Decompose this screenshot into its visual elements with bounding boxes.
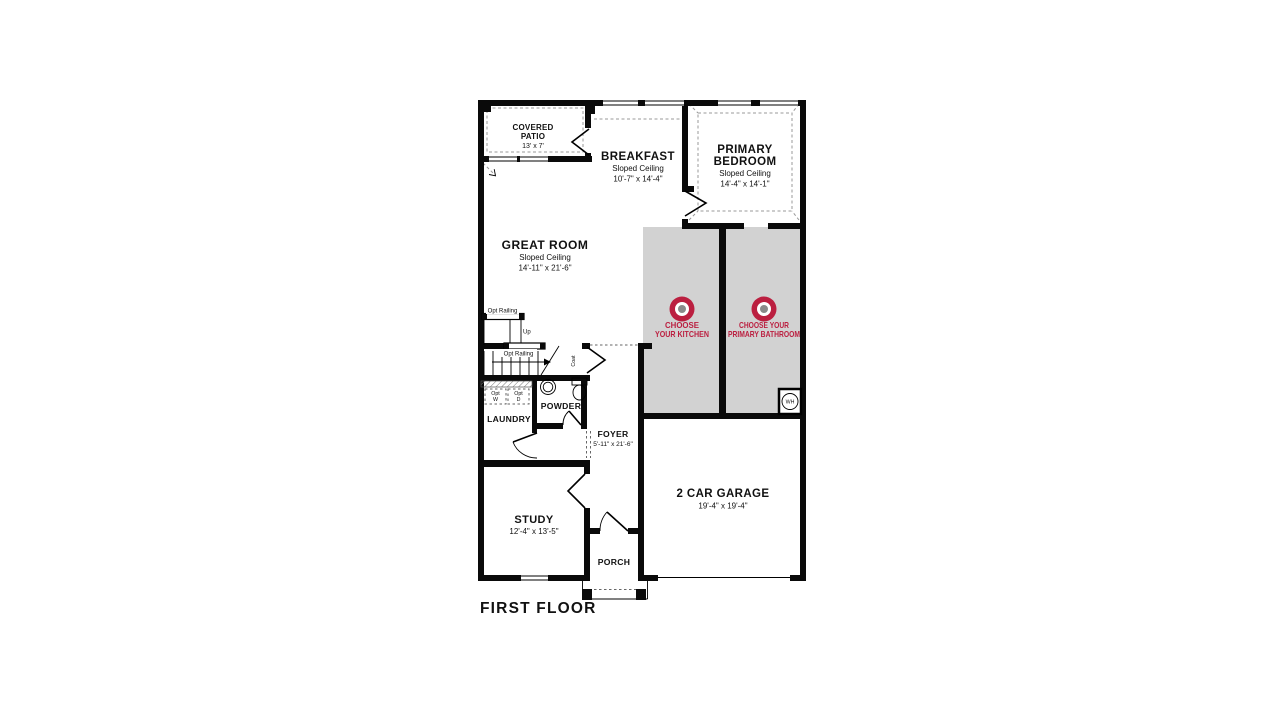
primary-bathroom-hotspot-label-2: PRIMARY BATHROOM bbox=[728, 329, 800, 339]
water-heater-label: WH bbox=[786, 400, 795, 406]
stair-direction-arrow bbox=[492, 359, 551, 366]
porch-post-left bbox=[582, 589, 592, 600]
powder-label: POWDER bbox=[541, 401, 582, 411]
opt-railing-lower-label: Opt Railing bbox=[504, 352, 534, 358]
garage-label: 2 CAR GARAGE 19'-4" x 19'-4" bbox=[677, 488, 770, 511]
opt-dryer-label-2: D bbox=[517, 397, 521, 403]
svg-text:BREAKFAST: BREAKFAST bbox=[601, 151, 675, 163]
svg-text:FOYER: FOYER bbox=[597, 429, 629, 439]
window-patio-1 bbox=[489, 156, 517, 162]
opt-railing-upper-label: Opt Railing bbox=[488, 309, 518, 315]
porch-label: PORCH bbox=[598, 557, 631, 567]
great-room-slope-arrow bbox=[483, 163, 496, 176]
svg-text:5'-11" x 21'-6": 5'-11" x 21'-6" bbox=[593, 441, 633, 448]
up-label: Up bbox=[523, 330, 531, 336]
foyer-label: FOYER 5'-11" x 21'-6" bbox=[593, 429, 633, 448]
floor-plan-drawing: Opt Railing Opt Railing Up Coat Opt W Op… bbox=[0, 0, 1280, 720]
opt-washer-label-2: W bbox=[493, 397, 498, 403]
covered-patio-label: COVERED PATIO 13' x 7' bbox=[513, 123, 554, 150]
window-bedroom-1 bbox=[718, 100, 751, 106]
svg-text:COVERED: COVERED bbox=[513, 123, 554, 132]
tray-corner-se bbox=[792, 211, 799, 220]
svg-text:GREAT ROOM: GREAT ROOM bbox=[502, 238, 589, 252]
floor-plan-page: Opt Railing Opt Railing Up Coat Opt W Op… bbox=[0, 0, 1280, 720]
primary-bedroom-door bbox=[685, 191, 706, 216]
study-door bbox=[568, 474, 585, 508]
svg-text:STUDY: STUDY bbox=[514, 514, 554, 526]
plan-title: FIRST FLOOR bbox=[480, 600, 597, 617]
kitchen-target-icon[interactable] bbox=[670, 297, 695, 322]
patio-door bbox=[572, 129, 589, 155]
svg-text:BEDROOM: BEDROOM bbox=[714, 156, 777, 168]
svg-text:PRIMARY: PRIMARY bbox=[717, 144, 772, 156]
svg-text:13' x 7': 13' x 7' bbox=[522, 143, 544, 150]
svg-text:14'-11" x 21'-6": 14'-11" x 21'-6" bbox=[518, 264, 571, 273]
porch-post-right bbox=[636, 589, 646, 600]
window-breakfast-2 bbox=[645, 100, 684, 106]
svg-text:2 CAR GARAGE: 2 CAR GARAGE bbox=[677, 488, 770, 500]
laundry-appliances: Opt W Opt D bbox=[481, 381, 532, 404]
corner-post-nw bbox=[478, 100, 491, 112]
svg-text:Sloped Ceiling: Sloped Ceiling bbox=[519, 253, 571, 262]
window-patio-2 bbox=[520, 156, 548, 162]
laundry-door bbox=[513, 433, 537, 458]
svg-text:PATIO: PATIO bbox=[521, 132, 545, 141]
primary-bathroom-target-icon[interactable] bbox=[752, 297, 777, 322]
coat-closet-door bbox=[587, 347, 605, 373]
svg-text:10'-7" x 14'-4": 10'-7" x 14'-4" bbox=[613, 175, 662, 184]
great-room-label: GREAT ROOM Sloped Ceiling 14'-11" x 21'-… bbox=[502, 238, 589, 273]
study-label: STUDY 12'-4" x 13'-5" bbox=[509, 514, 558, 536]
staircase: Opt Railing Opt Railing Up Coat bbox=[482, 306, 577, 375]
front-door bbox=[600, 512, 628, 531]
stair-break-line bbox=[541, 346, 559, 375]
svg-text:14'-4" x 14'-1": 14'-4" x 14'-1" bbox=[720, 180, 769, 189]
laundry-label: LAUNDRY bbox=[487, 414, 531, 424]
svg-text:12'-4" x 13'-5": 12'-4" x 13'-5" bbox=[509, 527, 558, 536]
coat-closet-label: Coat bbox=[571, 355, 577, 367]
powder-fixtures bbox=[541, 378, 588, 400]
lower-railing bbox=[504, 343, 545, 349]
svg-text:Sloped Ceiling: Sloped Ceiling bbox=[719, 169, 771, 178]
porch-slab bbox=[582, 581, 648, 600]
laundry-counter bbox=[481, 381, 532, 387]
window-breakfast-1 bbox=[603, 100, 638, 106]
breakfast-label: BREAKFAST Sloped Ceiling 10'-7" x 14'-4" bbox=[601, 151, 675, 184]
window-study bbox=[521, 575, 548, 581]
svg-text:Sloped Ceiling: Sloped Ceiling bbox=[612, 164, 664, 173]
powder-door bbox=[563, 411, 581, 425]
window-bedroom-2 bbox=[760, 100, 798, 106]
svg-text:19'-4" x 19'-4": 19'-4" x 19'-4" bbox=[698, 502, 747, 511]
kitchen-hotspot-label-2: YOUR KITCHEN bbox=[655, 329, 709, 339]
water-heater: WH bbox=[779, 389, 801, 414]
primary-bedroom-label: PRIMARY BEDROOM Sloped Ceiling 14'-4" x … bbox=[714, 144, 777, 189]
